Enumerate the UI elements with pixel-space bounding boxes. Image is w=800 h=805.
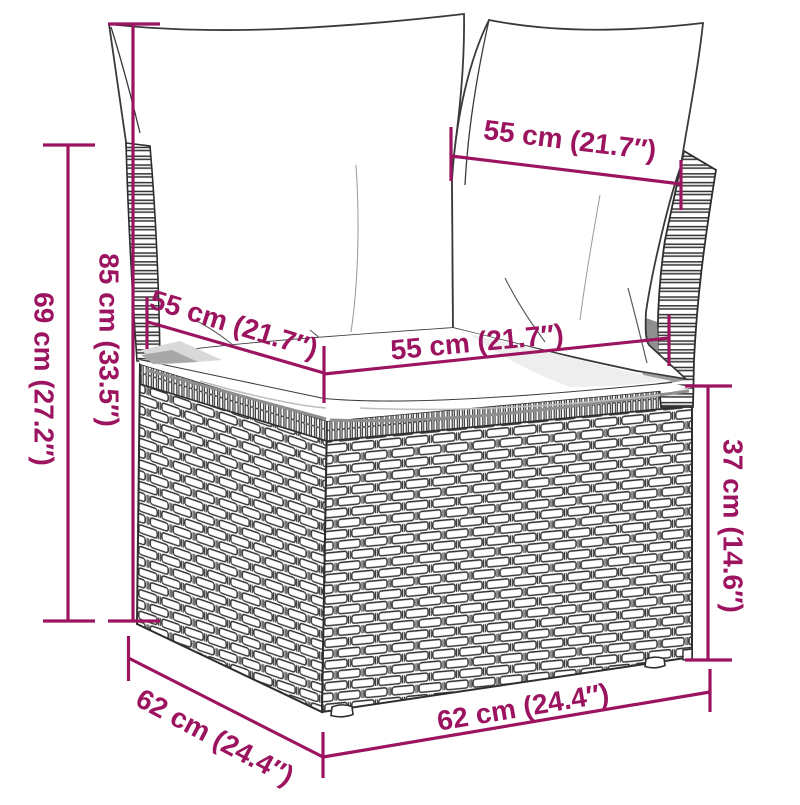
svg-text:85 cm (33.5″): 85 cm (33.5″) <box>94 253 125 427</box>
svg-text:69 cm (27.2″): 69 cm (27.2″) <box>29 292 60 466</box>
svg-text:37 cm (14.6″): 37 cm (14.6″) <box>718 439 749 613</box>
